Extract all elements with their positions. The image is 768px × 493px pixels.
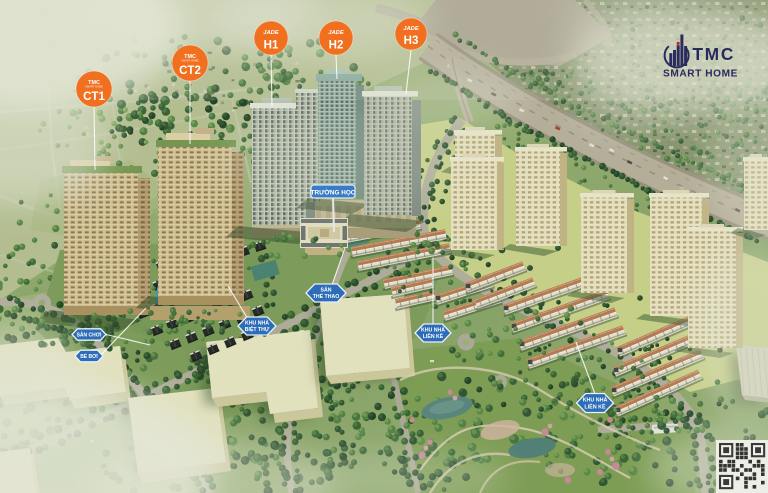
svg-text:LIỀN KỀ: LIỀN KỀ [423, 333, 444, 340]
svg-text:BỂ BƠI: BỂ BƠI [80, 353, 98, 360]
svg-text:SÂN: SÂN [321, 287, 332, 294]
svg-text:JADE: JADE [403, 26, 420, 32]
svg-text:H3: H3 [404, 35, 419, 47]
svg-text:SÂN CHƠI: SÂN CHƠI [77, 331, 102, 338]
svg-text:KHU NHÀ: KHU NHÀ [245, 320, 269, 327]
svg-text:CT2: CT2 [179, 65, 201, 77]
svg-text:SMART HOME: SMART HOME [181, 58, 199, 62]
svg-text:TMC: TMC [693, 44, 736, 64]
svg-text:BIỆT THỰ: BIỆT THỰ [245, 325, 270, 333]
svg-text:SMART HOME: SMART HOME [85, 84, 103, 88]
svg-text:LIỀN KỀ: LIỀN KỀ [584, 403, 606, 410]
svg-text:JADE: JADE [328, 30, 345, 36]
svg-text:H1: H1 [264, 40, 279, 52]
svg-text:CT1: CT1 [83, 91, 105, 103]
svg-text:THỂ THAO: THỂ THAO [313, 293, 340, 300]
svg-text:TRƯỜNG HỌC: TRƯỜNG HỌC [311, 188, 356, 197]
svg-text:KHU NHÀ: KHU NHÀ [421, 327, 445, 334]
svg-text:H2: H2 [329, 40, 344, 52]
svg-text:JADE: JADE [263, 30, 280, 36]
svg-text:SMART HOME: SMART HOME [663, 69, 738, 80]
svg-text:KHU NHÀ: KHU NHÀ [583, 397, 608, 404]
